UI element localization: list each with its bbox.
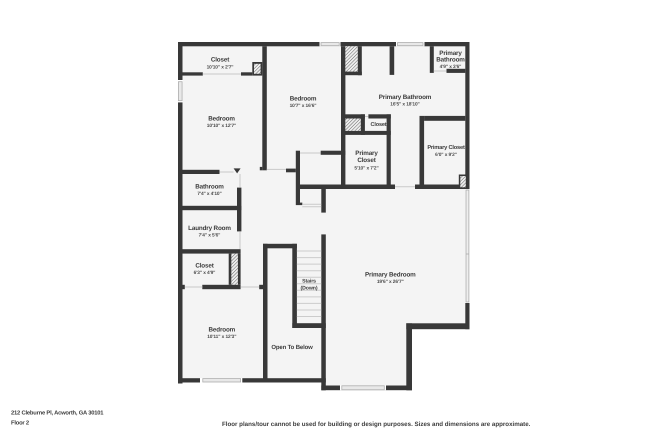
svg-text:4'9" x 3'6": 4'9" x 3'6" bbox=[440, 64, 462, 70]
svg-text:Bedroom: Bedroom bbox=[208, 115, 235, 122]
svg-text:Primary: Primary bbox=[355, 150, 378, 157]
svg-text:Bedroom: Bedroom bbox=[209, 327, 236, 334]
svg-text:Closet: Closet bbox=[371, 122, 387, 128]
svg-text:212 Cleburne Pl, Acworth, GA 3: 212 Cleburne Pl, Acworth, GA 30101 bbox=[11, 410, 104, 417]
svg-text:Closet: Closet bbox=[357, 157, 376, 164]
svg-text:Primary Bedroom: Primary Bedroom bbox=[365, 272, 416, 279]
svg-text:16'5" x 18'10": 16'5" x 18'10" bbox=[390, 102, 419, 108]
svg-text:10'10" x 2'7": 10'10" x 2'7" bbox=[207, 64, 234, 70]
svg-text:Bedroom: Bedroom bbox=[290, 95, 317, 102]
svg-text:Primary Bathroom: Primary Bathroom bbox=[379, 94, 432, 101]
svg-text:Closet: Closet bbox=[211, 56, 230, 63]
svg-text:Laundry Room: Laundry Room bbox=[188, 225, 231, 232]
svg-text:Closet: Closet bbox=[195, 263, 214, 270]
svg-text:7'4" x 4'10": 7'4" x 4'10" bbox=[197, 191, 221, 197]
svg-text:10'11" x 12'3": 10'11" x 12'3" bbox=[207, 334, 236, 340]
svg-text:6'3" x 4'9": 6'3" x 4'9" bbox=[194, 270, 216, 276]
svg-text:Bathroom: Bathroom bbox=[436, 57, 465, 64]
svg-text:Floor plans/tour cannot be use: Floor plans/tour cannot be used for buil… bbox=[222, 421, 531, 428]
svg-text:(Down): (Down) bbox=[301, 286, 318, 292]
svg-text:Stairs: Stairs bbox=[302, 279, 316, 285]
svg-text:Open To Below: Open To Below bbox=[271, 344, 313, 351]
svg-text:6'0" x 9'2": 6'0" x 9'2" bbox=[435, 152, 457, 158]
svg-text:10'7" x 16'6": 10'7" x 16'6" bbox=[290, 103, 317, 109]
svg-text:Primary Closet: Primary Closet bbox=[427, 144, 465, 151]
svg-text:19'6" x 26'7": 19'6" x 26'7" bbox=[377, 279, 404, 285]
svg-text:Floor 2: Floor 2 bbox=[11, 420, 29, 427]
svg-text:5'10" x 7'2": 5'10" x 7'2" bbox=[354, 165, 378, 171]
svg-text:10'10" x 12'7": 10'10" x 12'7" bbox=[207, 123, 236, 129]
svg-text:7'4" x 5'6": 7'4" x 5'6" bbox=[199, 233, 221, 239]
svg-text:Bathroom: Bathroom bbox=[195, 184, 224, 191]
